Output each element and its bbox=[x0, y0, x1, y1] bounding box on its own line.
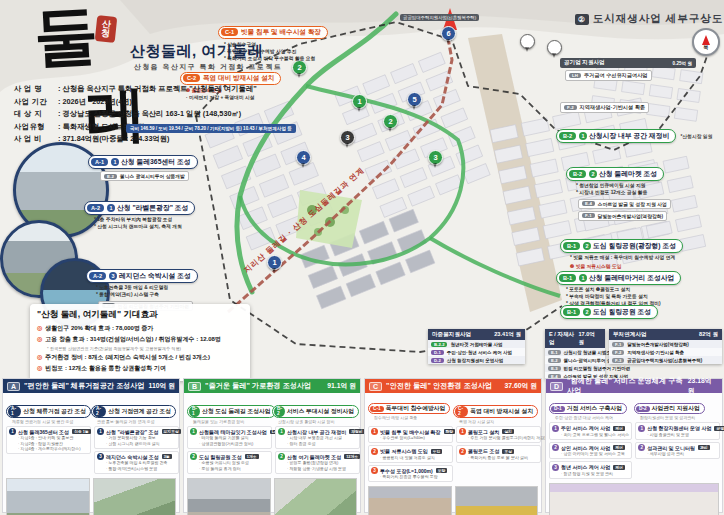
info-colon: : bbox=[58, 122, 60, 132]
group-pill: D-1거점 서비스 구축사업 bbox=[549, 403, 627, 414]
item-bullet: · 도심 둘레길 휴게 쉼터 bbox=[199, 466, 269, 472]
item-title: 산청 현장지원센터 운영 사업 bbox=[647, 425, 711, 431]
callout-title: 산청 "라벨른광장" 조성 bbox=[117, 203, 188, 213]
group-code: A-2 bbox=[93, 406, 106, 417]
callout-num: 3 bbox=[109, 272, 117, 280]
panel-group: D-2사업관리 지원사업현장지원센터 운영 및 성과관리 bbox=[634, 396, 719, 420]
item-bullet: · 상생경관협정(거리경관 정비) bbox=[199, 441, 269, 447]
fund-row-code: E-2 bbox=[548, 358, 561, 363]
fund-table-row: D-2산청 현장지원센터 운영사업 bbox=[428, 356, 525, 364]
panel-groups: D-1거점 서비스 구축사업주민·상인·청년 대상 서비스 케어D-2사업관리 … bbox=[546, 393, 722, 421]
fund-table-row: E-1산청시장 청년몰 시범조성사업 bbox=[545, 348, 605, 356]
group-note: 주민·상인·청년 대상 서비스 케어 bbox=[555, 415, 634, 420]
item-bullet: · 노후건축물 매입 & 리모델링 건축 bbox=[106, 460, 176, 466]
expected-effects: "산청 둘레, 여기둘레" 기대효과 생활인구 20% 확대 효과 : 78,0… bbox=[30, 304, 250, 381]
group-title: 폭염 대비 방재시설 설치 bbox=[470, 407, 533, 416]
fund-table-row: E-3빈집 리모델링 청년주거 기반마련 bbox=[545, 364, 605, 372]
map-title-text: 도시재생사업 세부구상도 bbox=[593, 12, 723, 26]
item-bullet: · 세부사업 성과 관리 bbox=[647, 451, 717, 457]
callout-bullets: * 청년창업 인큐베이팅 시설 지원* 시장내 빈점포 12개소 공실 활용 bbox=[576, 183, 671, 197]
panel-item: 1산청시장 내부 공간 재정비재정비· 시장 내부 보행환경 개선 시설· 쉼터… bbox=[275, 426, 360, 449]
callout-num: 1 bbox=[579, 132, 587, 140]
item-title-row: 3청년 서비스 케어 사업케어 bbox=[552, 464, 629, 471]
item-title: 빗물 저류시스템 도입 bbox=[380, 448, 428, 454]
fund-row-code: F-1 bbox=[612, 342, 624, 347]
funding-bar: 국비 146.59 / 도비 19.54 / 군비 78.20 / 기타(지방비… bbox=[126, 124, 296, 133]
callout-code: B-1 bbox=[563, 242, 580, 250]
fund-table-title: 부처연계사업 bbox=[613, 331, 647, 339]
map-pin-1: 1 bbox=[352, 94, 367, 109]
panel-header: A"편안한 둘레" 체류거점공간 조성사업110억 원 bbox=[3, 379, 179, 393]
panel-photo bbox=[187, 478, 271, 515]
panel-item: 2상인 서비스 케어 사업케어· 상인 아카데미 운영 및 서비스 교육 bbox=[549, 442, 632, 460]
panel-photos bbox=[365, 484, 541, 515]
linked-project-code: E-2 bbox=[104, 174, 117, 179]
item-title-row: 2상인 서비스 케어 사업케어 bbox=[552, 444, 629, 451]
item-title-row: 1주민 서비스 케어 사업케어 bbox=[552, 425, 629, 432]
callout-bullet: * 1층 주차타워 부지內 복합광장 조성 bbox=[94, 217, 195, 224]
fund-table-amount: 23.41억 원 bbox=[494, 331, 521, 339]
item-title: 산청둘레 테마길잇기 조성사업 bbox=[199, 429, 267, 435]
public-support-bar: 공기업 지원사업 0.25억 원 bbox=[560, 58, 696, 68]
page-title: 산청둘레, 여기둘레 bbox=[130, 42, 263, 61]
panel-item: 2산청 여기 둘레마켓 조성12개소· 빈점포 활용(청년창업 연계)· 체험형… bbox=[275, 451, 360, 474]
item-title: 투수성 포장(L=1,000m) bbox=[380, 468, 433, 474]
item-tag: 부지조성 bbox=[162, 429, 181, 434]
linked-project-code: E-4 bbox=[582, 201, 595, 206]
group-note: 둘레길을 잇는 가로환경 정비 bbox=[193, 419, 272, 424]
group-code: C-2 bbox=[455, 406, 468, 417]
linked-project-text: 스마트업 발굴 및 성장 지원 사업 bbox=[598, 201, 667, 207]
compass-needle bbox=[702, 35, 710, 45]
item-bullet: · 취미·교육 프로그램 및 웰니스 서비스 bbox=[561, 432, 629, 438]
panel-group: D-1거점 서비스 구축사업주민·상인·청년 대상 서비스 케어 bbox=[549, 396, 634, 420]
item-bullet: · 쉼터 환경 조성 bbox=[287, 441, 357, 447]
info-label: 대 상 지 bbox=[14, 109, 56, 119]
group-pill: D-2사업관리 지원사업 bbox=[634, 403, 705, 414]
group-code: B-2 bbox=[274, 406, 285, 417]
item-title: 산청 여기 둘레마켓 조성 bbox=[287, 454, 341, 460]
group-code: A-1 bbox=[8, 406, 21, 417]
item-tag: 설치 bbox=[502, 429, 514, 434]
callout-head: A-21산청 "라벨른광장" 조성 bbox=[84, 201, 195, 215]
panel-header: B"즐거운 둘레" 가로환경 조성사업91.1억 원 bbox=[184, 379, 360, 393]
map-pin-2: 2 bbox=[383, 114, 398, 129]
callout-bullet: * 시장내 빈점포 12개소 공실 활용 bbox=[576, 190, 671, 197]
callout-num: 1 bbox=[107, 204, 115, 212]
fund-row-text: 빈집 리모델링 청년주거 기반마련 bbox=[564, 366, 631, 371]
item-bullet: · 우수관로 정비(L=940m) bbox=[380, 435, 450, 441]
item-title-row: 2빗물 저류시스템 도입도입 bbox=[371, 448, 450, 455]
item-title-row: 3레지던스 숙박시설 조성3동 bbox=[97, 453, 176, 460]
f2-box-text: 지역재생사업·기반시설 확충 bbox=[580, 104, 645, 111]
item-title-row: 2도심 힐링공원 조성1개소 bbox=[190, 453, 269, 460]
panel-item: 1산청둘레 테마길잇기 조성사업L=1.1km· 테마형 둘레길 기본틀 설치·… bbox=[187, 426, 272, 449]
item-bullet: · 공공용지 내 빗물 저류조 설치 bbox=[380, 455, 450, 461]
fund-row-code: D-1 bbox=[431, 350, 444, 355]
project-info: 사 업 명:산청읍 옥산지구 특화 거점화 프로젝트 "산청둘레 여기둘레"사업… bbox=[14, 84, 257, 147]
item-title: 산청시장 내부 공간 재정비 bbox=[287, 429, 346, 435]
group-note: 체류형 관광거점 시설 및 공간 조성 bbox=[12, 419, 91, 424]
panel-item: 1산청 "라벨른광장" 조성부지조성· 거점 문화행사장 기능 확보· 산청 시… bbox=[94, 426, 179, 449]
item-number: 3 bbox=[371, 467, 378, 474]
item-number: 1 bbox=[190, 428, 197, 435]
item-number: 1 bbox=[371, 428, 378, 435]
logo-stamp: 산 청 bbox=[95, 15, 118, 43]
callout-title: 산청 둘레365센터 조성 bbox=[121, 157, 191, 167]
item-number: 3 bbox=[552, 464, 559, 471]
item-bullet: · 주요 거점 분사형 쿨링포그(미세먼지 저감) bbox=[468, 435, 538, 441]
item-title-row: 2성과관리 및 모니터링관리 bbox=[638, 444, 717, 451]
fund-row-text: 지역재생사업·기반시설 확충 bbox=[627, 350, 684, 355]
info-label: 사 업 명 bbox=[14, 84, 56, 94]
item-bullet: · 특화거리 중심 도로 물 분사 설비 bbox=[468, 455, 538, 461]
group-pill: C-2폭염 대비 방재시설 설치 bbox=[453, 405, 538, 418]
item-title-row: 2산청 여기 둘레마켓 조성12개소 bbox=[278, 453, 357, 460]
callout-code: B-2 bbox=[569, 170, 586, 178]
panel-title: "편안한 둘레" 체류거점공간 조성사업 bbox=[24, 381, 145, 391]
callout-bullets: * 노후건축물 3동 매입 & 리모델링* 통합 예약(관리) 시스템 구축 bbox=[96, 285, 198, 299]
panel-group: C-1폭우대비 침수예방사업침수재난 예방 시설 확충 bbox=[368, 396, 453, 424]
item-number: 2 bbox=[371, 448, 378, 455]
group-code: C-1 bbox=[370, 406, 384, 412]
callout-num: 2 bbox=[589, 170, 597, 178]
panel-photo bbox=[6, 478, 90, 515]
panel-item: 2도심 힐링공원 조성1개소· 소공원·커뮤니티 정원 조성· 도심 둘레길 휴… bbox=[187, 451, 272, 474]
item-number: 1 bbox=[278, 428, 285, 435]
info-label: 사업유형 bbox=[14, 122, 56, 132]
item-tag: 재정비 bbox=[349, 429, 364, 434]
callout-a-1-①: A-11산청 둘레365센터 조성E-2웰니스 광역시티투어 상품개발 bbox=[88, 150, 198, 181]
panel-item: 1쿨링포그 설치설치· 주요 거점 분사형 쿨링포그(미세먼지 저감) bbox=[456, 426, 541, 444]
item-tag: 확장 bbox=[444, 429, 456, 434]
callout-bullets: * 빗물 저류조 매설 : 폭우대비 침수예방 사업 연계 bbox=[570, 255, 683, 262]
panel-items: 1주민 서비스 케어 사업케어· 취미·교육 프로그램 및 웰니스 서비스2상인… bbox=[546, 421, 722, 481]
item-number: 3 bbox=[97, 453, 104, 460]
item-title: 쿨링로드 조성 bbox=[468, 448, 499, 454]
map-pin-4: 4 bbox=[296, 150, 311, 165]
panel-header: C"안전한 둘레" 안전환경 조성사업37.60억 원 bbox=[365, 379, 541, 393]
linked-project-box: F-1달빛농어촌개발사업(역량강화) bbox=[578, 211, 667, 221]
callout-code: B-1 bbox=[559, 274, 576, 282]
fund-row-code: B-2-2 bbox=[431, 342, 447, 347]
item-number: 1 bbox=[97, 428, 104, 435]
item-title: 성과관리 및 모니터링 bbox=[647, 445, 695, 451]
callout-title: 산청 둘레마켓 조성 bbox=[599, 169, 657, 179]
item-number: 2 bbox=[278, 453, 285, 460]
item-title-row: 1쿨링포그 설치설치 bbox=[459, 428, 538, 435]
item-title-row: 1빗물 침투 및 배수시설 확장확장 bbox=[371, 428, 450, 435]
public-support-amount: 0.25억 원 bbox=[673, 61, 692, 66]
item-tag: 포장 bbox=[436, 468, 448, 473]
fund-table-title: 마중물지원사업 bbox=[432, 331, 471, 339]
map-pin-3: 3 bbox=[340, 130, 355, 145]
item-number: 1 bbox=[638, 425, 645, 432]
callout-bullet: * 산청 시그니처 랜드마크 설치, 축제 개최 bbox=[94, 224, 195, 231]
item-number: 2 bbox=[638, 444, 645, 451]
fund-row-code: F-3 bbox=[612, 358, 624, 363]
callout-num: 2 bbox=[583, 242, 591, 250]
item-tag: 12개소 bbox=[344, 454, 360, 459]
item-number: 2 bbox=[459, 448, 466, 455]
fund-row-text: 청년타겟 거점테마몰 사업 bbox=[450, 342, 502, 347]
group-code: D-1 bbox=[551, 406, 565, 412]
item-title-row: 1산청 "라벨른광장" 조성부지조성 bbox=[97, 428, 176, 435]
public-support-row-code: LH bbox=[569, 73, 581, 78]
fund-row-text: 주민·상인·청년 서비스 케어 사업 bbox=[447, 350, 512, 355]
panel-group: B-2서비스 무대시설 정비사업산청시장 상권 활성화 시설 정비 bbox=[272, 396, 357, 424]
panel-col: 1빗물 침투 및 배수시설 확장확장· 우수관로 정비(L=940m)2빗물 저… bbox=[368, 426, 453, 485]
callout-c2-code: C-2 bbox=[183, 74, 200, 82]
f2-box: F-2 지역재생사업·기반시설 확충 bbox=[560, 102, 649, 113]
callout-head: A-23레지던스 숙박시설 조성 bbox=[86, 269, 198, 283]
item-number: 1 bbox=[459, 428, 466, 435]
panel-items: 1산청 둘레365센터 조성신축 1동· 지상1층 : 안내·카페 및 홍보관·… bbox=[3, 425, 179, 476]
info-value: 2026년 ~2029년(4년) bbox=[62, 97, 132, 107]
item-bullet: · 통합 예약(관리)시스템 운영 bbox=[106, 466, 176, 472]
panel-letter: B bbox=[188, 382, 201, 391]
panel-group: B-1산청 도심 둘레길 조성사업둘레길을 잇는 가로환경 정비 bbox=[187, 396, 272, 424]
group-code: B-1 bbox=[189, 406, 200, 417]
info-value: 경상남도 산청군 산청읍 옥산리 163-1 일원 (148,530㎡) bbox=[62, 109, 241, 119]
fund-row-text: 달빛농어촌개발사업(역량강화) bbox=[627, 342, 689, 347]
info-colon: : bbox=[58, 109, 60, 119]
item-title: 빗물 침투 및 배수시설 확장 bbox=[380, 429, 441, 435]
panel-groups: A-1산청 체류거점 공간 조성체류형 관광거점 시설 및 공간 조성A-2산청… bbox=[3, 393, 179, 425]
item-title: 산청 둘레365센터 조성 bbox=[18, 429, 69, 435]
item-tag: 운영 bbox=[714, 426, 724, 431]
panel-item: 2성과관리 및 모니터링관리· 세부사업 성과 관리 bbox=[635, 442, 720, 460]
panel-col: 1쿨링포그 설치설치· 주요 거점 분사형 쿨링포그(미세먼지 저감)2쿨링로드… bbox=[456, 426, 541, 485]
callout-bullet: * 포토존 설치 ❶쿨링포그 설치 bbox=[566, 287, 681, 294]
callout-title: 산청시장 내부 공간 재정비 bbox=[589, 131, 669, 141]
map-pin-2: 2 bbox=[292, 60, 307, 75]
callout-code: B-1 bbox=[563, 308, 580, 316]
group-note: 침수재난 예방 시설 확충 bbox=[374, 415, 453, 420]
panel-d: D"함께한 둘레" 서비스 운영체계 구축사업23.18억 원D-1거점 서비스… bbox=[545, 378, 723, 513]
fund-table-title: E / 자체사업 bbox=[549, 331, 578, 347]
panel-item: 1빗물 침투 및 배수시설 확장확장· 우수관로 정비(L=940m) bbox=[368, 426, 453, 444]
fund-table-row: E-2웰니스·광역시티투어 상품개발 bbox=[545, 356, 605, 364]
callout-head: B-12도심 힐링공원(광장형) 조성 bbox=[560, 239, 683, 253]
info-label: 사업 기간 bbox=[14, 97, 56, 107]
group-title: 거점 서비스 구축사업 bbox=[567, 404, 622, 413]
panel-groups: B-1산청 도심 둘레길 조성사업둘레길을 잇는 가로환경 정비B-2서비스 무… bbox=[184, 393, 360, 425]
panel-letter: A bbox=[7, 382, 20, 391]
group-title: 사업관리 지원사업 bbox=[652, 404, 700, 413]
item-tag: 케어 bbox=[613, 445, 625, 450]
group-title: 서비스 무대시설 정비사업 bbox=[287, 407, 354, 416]
callout-b-2-②: B-22산청 둘레마켓 조성* 청년창업 인큐베이팅 시설 지원* 시장내 빈점… bbox=[566, 162, 671, 221]
effects-footnote: * 한국은행 산업연관표 기준(건설업 취업유발계수 및 고용유발계수 적용) bbox=[47, 346, 243, 351]
fund-table-header: E / 자체사업17.0억 원 bbox=[545, 329, 605, 348]
callout-bullet: * 통합 예약(관리) 시스템 구축 bbox=[96, 292, 198, 299]
fund-table-row: F-3공공임대주택지원사업(신혼행복주택) bbox=[609, 356, 722, 364]
fund-table-amount: 82억 원 bbox=[699, 331, 718, 339]
item-title-row: 1산청둘레 테마길잇기 조성사업L=1.1km bbox=[190, 428, 269, 435]
group-pill: A-2산청 거점연계 공간 조성 bbox=[91, 405, 176, 418]
fund-table-row: F-1달빛농어촌개발사업(역량강화) bbox=[609, 340, 722, 348]
panel-group: A-2산청 거점연계 공간 조성관광 홍보·둘레길 거점 연계 조성 bbox=[91, 396, 176, 424]
fund-row-code: E-1 bbox=[548, 350, 561, 355]
item-bullet: · 산청 시그니처 랜드마크 설치 bbox=[106, 441, 176, 447]
info-value: 371.84억원(마중물 : 244.33억원) bbox=[62, 134, 169, 144]
callout-bullet: * 빗물 저류조 매설 : 폭우대비 침수예방 사업 연계 bbox=[570, 255, 683, 262]
panel-title: "안전한 둘레" 안전환경 조성사업 bbox=[386, 381, 492, 391]
panel-photos bbox=[546, 481, 722, 515]
group-note: 산청시장 상권 활성화 시설 정비 bbox=[278, 419, 357, 424]
callout-code: A-2 bbox=[89, 272, 106, 280]
callout-num: 1 bbox=[579, 274, 587, 282]
item-title: 산청 "라벨른광장" 조성 bbox=[106, 429, 159, 435]
public-support-row-text: 주거급여 수선유지급여사업 bbox=[584, 72, 648, 79]
logo-char-1: 둘 bbox=[32, 2, 99, 69]
callout-code: A-1 bbox=[91, 158, 108, 166]
linked-project-box: E-4스마트업 발굴 및 성장 지원 사업 bbox=[578, 199, 671, 209]
callout-bullet: * 노후건축물 3동 매입 & 리모델링 bbox=[96, 285, 198, 292]
public-support-title: 공기업 지원사업 bbox=[564, 59, 605, 67]
item-tag: 도입 bbox=[431, 449, 443, 454]
callout-side-note: *산청시장 일원 bbox=[680, 134, 712, 139]
item-title: 쿨링포그 설치 bbox=[468, 429, 499, 435]
callout-a-2-①: A-21산청 "라벨른광장" 조성* 1층 주차타워 부지內 복합광장 조성* … bbox=[84, 196, 195, 231]
item-number: 1 bbox=[552, 425, 559, 432]
callout-head: B-21산청시장 내부 공간 재정비 bbox=[556, 129, 676, 143]
panel-photo bbox=[455, 486, 539, 515]
info-colon: : bbox=[58, 84, 60, 94]
panel-amount: 23.18억 원 bbox=[688, 376, 718, 396]
linked-project-code: F-1 bbox=[582, 213, 595, 218]
callout-title: 산청 둘레테마거리 조성사업 bbox=[589, 273, 674, 283]
item-bullet: · 체험형 상품·기념품샵 시범 운영 bbox=[287, 466, 357, 472]
item-title-row: 1산청시장 내부 공간 재정비재정비 bbox=[278, 428, 357, 435]
map-pin-boundary bbox=[520, 34, 535, 49]
callout-title: 도심 힐링공원(광장형) 조성 bbox=[593, 241, 676, 251]
item-title-row: 1산청 현장지원센터 운영 사업운영 bbox=[638, 425, 717, 432]
item-number: 1 bbox=[9, 428, 16, 435]
callout-b-2-①: B-21산청시장 내부 공간 재정비*산청시장 일원 bbox=[556, 124, 712, 143]
item-number: 2 bbox=[190, 453, 197, 460]
linked-project-box: E-2웰니스 광역시티투어 상품개발 bbox=[100, 171, 189, 181]
item-title: 도심 힐링공원 조성 bbox=[199, 454, 242, 460]
linked-project-text: 웰니스 광역시티투어 상품개발 bbox=[120, 173, 185, 179]
project-info-row: 사 업 명:산청읍 옥산지구 특화 거점화 프로젝트 "산청둘레 여기둘레" bbox=[14, 84, 257, 94]
item-tag: 3동 bbox=[162, 454, 172, 459]
linked-project-text: 달빛농어촌개발사업(역량강화) bbox=[598, 213, 664, 219]
panel-title: "함께한 둘레" 서비스 운영체계 구축사업 bbox=[567, 376, 688, 396]
stamp-char-2: 청 bbox=[101, 29, 111, 39]
item-tag: 1개소 bbox=[245, 454, 259, 459]
panel-item: 3레지던스 숙박시설 조성3동· 노후건축물 매입 & 리모델링 건축· 통합 … bbox=[94, 451, 179, 474]
callout-head: A-11산청 둘레365센터 조성 bbox=[88, 155, 198, 169]
group-title: 산청 체류거점 공간 조성 bbox=[23, 407, 86, 416]
item-title: 청년 서비스 케어 사업 bbox=[561, 464, 610, 470]
fund-table: 마중물지원사업23.41억 원B-2-2청년타겟 거점테마몰 사업D-1주민·상… bbox=[428, 329, 525, 364]
item-tag: 관리 bbox=[698, 445, 710, 450]
callout-bullets: * 1층 주차타워 부지內 복합광장 조성* 산청 시그니처 랜드마크 설치, … bbox=[94, 217, 195, 231]
panel-item: 1산청 현장지원센터 운영 사업운영· 사업 총괄관리 및 운영 bbox=[635, 422, 720, 440]
panel-group: C-2폭염 대비 방재시설 설치폭염 저감 시설 설치 bbox=[453, 396, 538, 424]
fund-row-code: D-2 bbox=[431, 358, 444, 363]
callout-code: A-2 bbox=[87, 204, 104, 212]
map-pin-3: 3 bbox=[428, 150, 443, 165]
group-pill: B-2서비스 무대시설 정비사업 bbox=[272, 405, 359, 418]
fund-table-header: 부처연계사업82억 원 bbox=[609, 329, 722, 340]
fund-row-text: 공공임대주택지원사업(신혼행복주택) bbox=[627, 358, 702, 363]
panel-col: 1산청시장 내부 공간 재정비재정비· 시장 내부 보행환경 개선 시설· 쉼터… bbox=[275, 426, 360, 476]
panel-header: D"함께한 둘레" 서비스 운영체계 구축사업23.18억 원 bbox=[546, 379, 722, 393]
item-tag: 케어 bbox=[613, 465, 625, 470]
group-pill: A-1산청 체류거점 공간 조성 bbox=[6, 405, 91, 418]
panel-amount: 91.1억 원 bbox=[327, 381, 356, 391]
callout-num: 2 bbox=[583, 308, 591, 316]
compass-label: 북 bbox=[704, 45, 709, 50]
callout-c1-code: C-1 bbox=[221, 28, 238, 36]
group-title: 산청 도심 둘레길 조성사업 bbox=[202, 407, 271, 416]
public-support-row: LH 주거급여 수선유지급여사업 bbox=[565, 70, 652, 81]
effect-item: 빈점포 : 12개소 활용을 통한 상권활성화 기여 bbox=[37, 364, 243, 373]
panel-col: 1주민 서비스 케어 사업케어· 취미·교육 프로그램 및 웰니스 서비스2상인… bbox=[549, 422, 632, 481]
group-title: 폭우대비 침수예방사업 bbox=[386, 404, 446, 413]
panel-group: A-1산청 체류거점 공간 조성체류형 관광거점 시설 및 공간 조성 bbox=[6, 396, 91, 424]
fund-table-row: D-1주민·상인·청년 서비스 케어 사업 bbox=[428, 348, 525, 356]
panel-photo bbox=[274, 478, 358, 515]
item-bullet: · 상인 아카데미 운영 및 서비스 교육 bbox=[561, 451, 629, 457]
callout-bullet: * 청년창업 인큐베이팅 시설 지원 bbox=[576, 183, 671, 190]
panel-letter: D bbox=[550, 382, 563, 391]
effects-title: "산청 둘레, 여기둘레" 기대효과 bbox=[37, 309, 243, 321]
panel-col: 1산청 현장지원센터 운영 사업운영· 사업 총괄관리 및 운영2성과관리 및 … bbox=[635, 422, 720, 481]
item-title: 레지던스 숙박시설 조성 bbox=[106, 454, 159, 460]
item-title-row: 1산청 둘레365센터 조성신축 1동 bbox=[9, 428, 88, 435]
panel-amount: 110억 원 bbox=[149, 381, 175, 391]
item-bullet: · 청년 창업 지원 및 운영 관리 bbox=[561, 471, 629, 477]
fund-row-text: 산청 현장지원센터 운영사업 bbox=[447, 358, 504, 363]
group-code: D-2 bbox=[636, 406, 650, 412]
map-title: ② 도시재생사업 세부구상도 bbox=[575, 12, 723, 26]
item-bullet: · 사업 총괄관리 및 운영 bbox=[647, 432, 717, 438]
panel-photo bbox=[93, 478, 177, 515]
panel-items: 1산청둘레 테마길잇기 조성사업L=1.1km· 테마형 둘레길 기본틀 설치·… bbox=[184, 425, 360, 476]
fund-table-row: F-2지역재생사업·기반시설 확충 bbox=[609, 348, 722, 356]
callout-title: 레지던스 숙박시설 조성 bbox=[119, 271, 191, 281]
f2-box-code: F-2 bbox=[564, 105, 577, 110]
panel-groups: C-1폭우대비 침수예방사업침수재난 예방 시설 확충C-2폭염 대비 방재시설… bbox=[365, 393, 541, 425]
group-pill: B-1산청 도심 둘레길 조성사업 bbox=[187, 405, 276, 418]
callout-head: B-11산청 둘레테마거리 조성사업 bbox=[556, 271, 681, 285]
panel-col: 1산청 "라벨른광장" 조성부지조성· 거점 문화행사장 기능 확보· 산청 시… bbox=[94, 426, 179, 476]
panel-title: "즐거운 둘레" 가로환경 조성사업 bbox=[205, 381, 311, 391]
map-pin-6: 6 bbox=[441, 26, 456, 41]
item-tag: 케어 bbox=[613, 426, 625, 431]
callout-head: B-22산청 둘레마켓 조성 bbox=[566, 167, 664, 181]
fund-table: 부처연계사업82억 원F-1달빛농어촌개발사업(역량강화)F-2지역재생사업·기… bbox=[609, 329, 722, 364]
callout-c2-title: 폭염 대비 방재시설 설치 bbox=[203, 74, 274, 83]
item-tag: 신축 1동 bbox=[72, 429, 91, 434]
project-info-row: 대 상 지:경상남도 산청군 산청읍 옥산리 163-1 일원 (148,530… bbox=[14, 109, 257, 119]
group-note: 폭염 저감 시설 설치 bbox=[459, 419, 538, 424]
panel-item: 2빗물 저류시스템 도입도입· 공공용지 내 빗물 저류조 설치 bbox=[368, 445, 453, 463]
fund-table-amount: 17.0억 원 bbox=[578, 331, 601, 347]
item-number: 2 bbox=[552, 444, 559, 451]
fund-row-code: E-3 bbox=[548, 366, 561, 371]
public-housing-label: 공공임대주택지원사업(신혼행복주택) bbox=[400, 14, 479, 21]
fund-table-header: 마중물지원사업23.41억 원 bbox=[428, 329, 525, 340]
panel-item: 1산청 둘레365센터 조성신축 1동· 지상1층 : 안내·카페 및 홍보관·… bbox=[6, 426, 91, 455]
panel-amount: 37.60억 원 bbox=[505, 381, 538, 391]
panel-col: 1산청둘레 테마길잇기 조성사업L=1.1km· 테마형 둘레길 기본틀 설치·… bbox=[187, 426, 272, 476]
effect-item: 고용 창출 효과 : 314명(건설업/서비스업) / 취업유발계수 : 12.… bbox=[37, 335, 243, 344]
